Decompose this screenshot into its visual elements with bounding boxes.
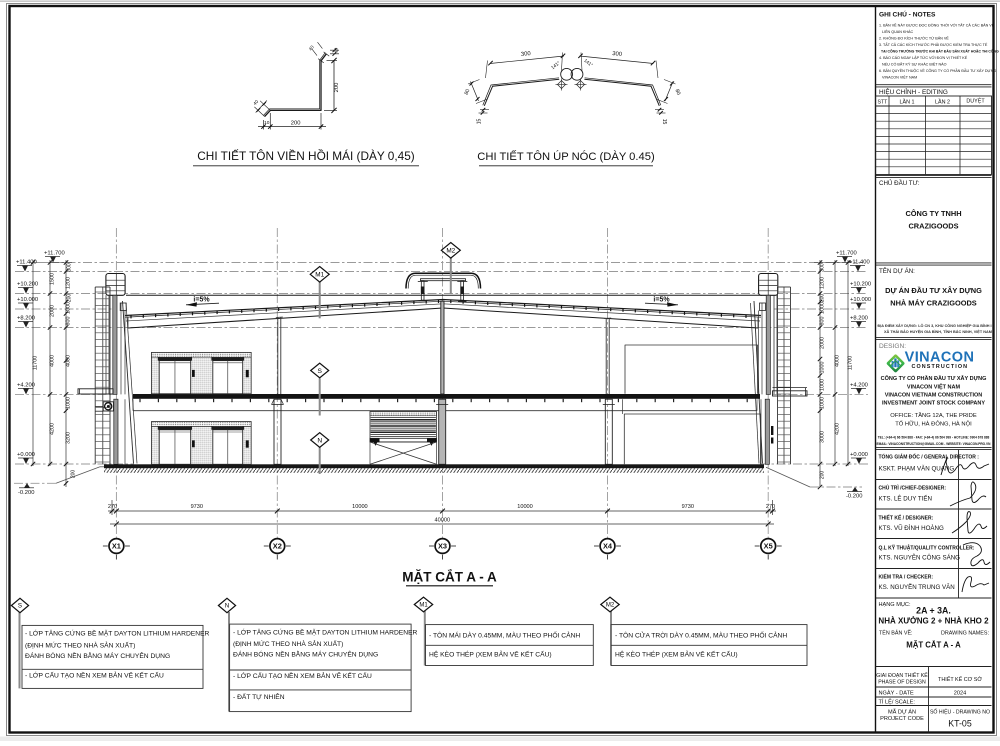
svg-text:+0.000: +0.000 xyxy=(850,452,868,458)
svg-text:1000: 1000 xyxy=(820,302,826,314)
svg-text:SỐ HIỆU - DRAWING NO: SỐ HIỆU - DRAWING NO xyxy=(930,708,990,716)
svg-text:200: 200 xyxy=(71,470,77,479)
svg-text:200: 200 xyxy=(820,471,826,480)
svg-text:X3: X3 xyxy=(438,542,447,551)
svg-text:DESIGN:: DESIGN: xyxy=(879,343,906,350)
svg-text:300: 300 xyxy=(67,263,73,272)
svg-text:1500: 1500 xyxy=(50,273,56,285)
svg-text:11700: 11700 xyxy=(33,356,39,371)
svg-text:800: 800 xyxy=(820,317,826,326)
svg-text:300: 300 xyxy=(521,51,531,58)
svg-text:3200: 3200 xyxy=(66,432,72,444)
svg-text:PHASE OF DESIGN: PHASE OF DESIGN xyxy=(878,680,926,686)
svg-text:VINACON VIETNAM CONSTRUCTION: VINACON VIETNAM CONSTRUCTION xyxy=(885,393,983,399)
svg-text:S: S xyxy=(18,603,22,610)
svg-text:1200: 1200 xyxy=(66,277,72,289)
svg-text:10: 10 xyxy=(334,47,339,53)
svg-text:MẶT CẮT A - A: MẶT CẮT A - A xyxy=(402,570,497,585)
svg-text:i=5%: i=5% xyxy=(193,296,210,303)
svg-text:M1: M1 xyxy=(315,272,324,279)
svg-text:VINACON VIỆT NAM: VINACON VIỆT NAM xyxy=(907,383,961,391)
svg-text:X5: X5 xyxy=(764,542,773,551)
svg-text:270: 270 xyxy=(766,504,775,510)
svg-text:4000: 4000 xyxy=(66,355,72,367)
svg-text:3000: 3000 xyxy=(820,431,826,443)
svg-text:15: 15 xyxy=(661,119,667,125)
svg-text:+0.000: +0.000 xyxy=(17,452,35,458)
svg-text:+8.200: +8.200 xyxy=(17,316,35,322)
svg-text:-0.200: -0.200 xyxy=(18,490,34,496)
svg-text:10000: 10000 xyxy=(517,504,533,510)
svg-text:S: S xyxy=(317,368,322,375)
svg-text:6. BẢN QUYỀN THUỘC VỀ CÔNG TY: 6. BẢN QUYỀN THUỘC VỀ CÔNG TY CỔ PHẦN ĐẦ… xyxy=(879,68,996,73)
svg-text:+10.200: +10.200 xyxy=(850,282,871,288)
svg-text:TẠI CÔNG TRƯỜNG TRƯỚC KHI BẮT: TẠI CÔNG TRƯỜNG TRƯỚC KHI BẮT ĐẦU SẢN XU… xyxy=(881,49,999,54)
svg-text:1. BẢN VẼ NÀY ĐƯỢC ĐỌC ĐỒNG TH: 1. BẢN VẼ NÀY ĐƯỢC ĐỌC ĐỒNG THỜI VỚI TẤT… xyxy=(879,23,995,28)
svg-text:200: 200 xyxy=(67,294,73,303)
svg-text:+4.200: +4.200 xyxy=(850,382,868,388)
svg-text:2. KHÔNG ĐO KÍCH THƯỚC TỪ BẢN: 2. KHÔNG ĐO KÍCH THƯỚC TỪ BẢN VẼ xyxy=(879,36,949,41)
svg-text:300: 300 xyxy=(820,263,826,272)
svg-text:CHI TIẾT TÔN ÚP NÓC (DÀY 0.45): CHI TIẾT TÔN ÚP NÓC (DÀY 0.45) xyxy=(477,150,655,163)
svg-text:CONSTRUCTION: CONSTRUCTION xyxy=(911,364,968,370)
svg-text:270: 270 xyxy=(108,504,117,510)
svg-text:STT: STT xyxy=(878,100,889,106)
svg-text:CHỦ TRÌ /CHIEF-DESIGNER:: CHỦ TRÌ /CHIEF-DESIGNER: xyxy=(879,484,947,492)
svg-text:N: N xyxy=(317,437,322,444)
svg-text:X1: X1 xyxy=(112,542,121,551)
svg-text:KTS. NGUYỄN CÔNG SÁNG: KTS. NGUYỄN CÔNG SÁNG xyxy=(879,555,961,562)
svg-text:KT-05: KT-05 xyxy=(948,719,972,729)
svg-text:CHỦ ĐẦU TƯ:: CHỦ ĐẦU TƯ: xyxy=(879,180,920,187)
svg-text:MẶT CẮT A - A: MẶT CẮT A - A xyxy=(906,641,961,650)
svg-text:THIẾT KẾ / DESIGNER:: THIẾT KẾ / DESIGNER: xyxy=(879,515,934,522)
svg-text:1000: 1000 xyxy=(66,302,72,314)
svg-text:TEL: (+84-4) 66 564 888 - FAX:: TEL: (+84-4) 66 564 888 - FAX: (+84-4) 6… xyxy=(878,436,990,440)
svg-text:KTS. LÊ DUY TIẾN: KTS. LÊ DUY TIẾN xyxy=(879,495,932,503)
svg-text:+10.000: +10.000 xyxy=(17,297,38,303)
svg-text:GHI CHÚ - NOTES: GHI CHÚ - NOTES xyxy=(879,10,936,19)
svg-text:1000: 1000 xyxy=(820,379,826,391)
svg-text:MÃ DỰ ÁN: MÃ DỰ ÁN xyxy=(888,709,916,716)
svg-text:X2: X2 xyxy=(273,542,282,551)
svg-text:M1: M1 xyxy=(419,603,428,609)
svg-text:4. BÁO CÁO NGAY LẬP TỨC VỚI ĐƠ: 4. BÁO CÁO NGAY LẬP TỨC VỚI ĐƠN VỊ THIẾT… xyxy=(879,55,968,60)
svg-text:4000: 4000 xyxy=(50,355,56,367)
svg-text:M2: M2 xyxy=(446,248,455,255)
svg-text:10000: 10000 xyxy=(352,504,368,510)
svg-text:TÊN DỰ ÁN:: TÊN DỰ ÁN: xyxy=(879,267,915,275)
svg-text:LIÊN QUAN KHÁC: LIÊN QUAN KHÁC xyxy=(882,29,913,34)
svg-text:-0.200: -0.200 xyxy=(846,494,862,500)
svg-text:TỐ HỮU, HÀ ĐÔNG, HÀ NỘI: TỐ HỮU, HÀ ĐÔNG, HÀ NỘI xyxy=(895,421,972,428)
svg-text:NHÀ MÁY CRAZIGOODS: NHÀ MÁY CRAZIGOODS xyxy=(890,299,977,308)
svg-text:TỈ LỆ/ SCALE:: TỈ LỆ/ SCALE: xyxy=(879,697,916,705)
svg-text:DRAWING NAMES:: DRAWING NAMES: xyxy=(941,631,989,637)
svg-text:15: 15 xyxy=(477,119,483,125)
svg-text:+11.700: +11.700 xyxy=(836,251,857,257)
svg-text:CHI TIẾT TÔN VIỀN HỒI MÁI (DÀY: CHI TIẾT TÔN VIỀN HỒI MÁI (DÀY 0,45) xyxy=(197,149,414,163)
svg-text:CRAZIGOODS: CRAZIGOODS xyxy=(908,222,958,231)
svg-text:LẦN 1: LẦN 1 xyxy=(900,99,915,106)
svg-text:N: N xyxy=(225,603,229,610)
svg-text:200: 200 xyxy=(820,294,826,303)
svg-text:KIỂM TRA / CHECKER:: KIỂM TRA / CHECKER: xyxy=(879,574,934,581)
svg-text:4200: 4200 xyxy=(50,423,56,435)
svg-text:KS. NGUYỄN TRUNG VĂN: KS. NGUYỄN TRUNG VĂN xyxy=(879,584,955,591)
svg-text:2000: 2000 xyxy=(820,337,826,349)
svg-text:CÔNG TY CỔ PHẦN ĐẦU TƯ XÂY DỰN: CÔNG TY CỔ PHẦN ĐẦU TƯ XÂY DỰNG xyxy=(881,374,987,382)
svg-text:CÔNG TY TNHH: CÔNG TY TNHH xyxy=(905,209,961,218)
svg-text:HIỆU CHỈNH - EDITING: HIỆU CHỈNH - EDITING xyxy=(879,87,948,96)
svg-text:LẦN 2: LẦN 2 xyxy=(935,99,950,106)
svg-text:+11.400: +11.400 xyxy=(849,260,870,266)
svg-text:EMAIL: VINACONSTRUCTION@GMAIL.: EMAIL: VINACONSTRUCTION@GMAIL.COM - WEBS… xyxy=(877,442,992,446)
svg-text:NẾU CÓ BẤT KỲ SỰ KHÁC BIỆT NÀO: NẾU CÓ BẤT KỲ SỰ KHÁC BIỆT NÀO xyxy=(882,62,947,67)
svg-text:DUYỆT: DUYỆT xyxy=(966,97,985,105)
svg-text:9730: 9730 xyxy=(191,504,203,510)
svg-text:PROJECT CODE: PROJECT CODE xyxy=(880,716,924,722)
svg-text:GIAI ĐOẠN THIẾT KẾ: GIAI ĐOẠN THIẾT KẾ xyxy=(876,672,928,679)
svg-text:OFFICE: TẦNG 12A, THE PRIDE: OFFICE: TẦNG 12A, THE PRIDE xyxy=(890,412,977,419)
svg-text:VINACON VIỆT NAM: VINACON VIỆT NAM xyxy=(882,75,917,80)
svg-text:1000: 1000 xyxy=(820,397,826,409)
svg-text:KTS. VŨ ĐÌNH HOÀNG: KTS. VŨ ĐÌNH HOÀNG xyxy=(879,525,945,532)
svg-text:2000: 2000 xyxy=(50,305,56,317)
svg-text:X4: X4 xyxy=(603,542,613,551)
svg-text:+8.200: +8.200 xyxy=(850,316,868,322)
svg-text:200: 200 xyxy=(291,120,301,126)
svg-text:i=5%: i=5% xyxy=(653,296,670,303)
svg-text:10: 10 xyxy=(264,120,270,126)
svg-text:NHÀ XƯỞNG 2 + NHÀ KHO 2: NHÀ XƯỞNG 2 + NHÀ KHO 2 xyxy=(878,617,989,626)
svg-text:40000: 40000 xyxy=(435,518,451,524)
svg-text:11700: 11700 xyxy=(848,356,854,371)
svg-text:ĐỊA ĐIỂM XÂY DỰNG: LÔ CN 3, KH: ĐỊA ĐIỂM XÂY DỰNG: LÔ CN 3, KHU CÔNG NGH… xyxy=(878,323,992,328)
svg-text:+4.200: +4.200 xyxy=(17,382,35,388)
svg-text:4200: 4200 xyxy=(835,423,841,435)
svg-text:TỔNG GIÁM ĐỐC / GENERAL DIRECT: TỔNG GIÁM ĐỐC / GENERAL DIRECTOR : xyxy=(879,454,980,461)
svg-text:HẠNG MỤC:: HẠNG MỤC: xyxy=(879,602,911,608)
svg-text:M2: M2 xyxy=(606,603,615,609)
svg-text:+10.000: +10.000 xyxy=(850,297,871,303)
svg-text:+11.700: +11.700 xyxy=(44,251,65,257)
svg-text:3. TẤT CẢ CÁC KÍCH THƯỚC PHẢI: 3. TẤT CẢ CÁC KÍCH THƯỚC PHẢI ĐƯỢC KIỂM … xyxy=(879,42,988,47)
svg-text:XÃ THÁI BẢO HUYỆN GIA BÌNH, TỈ: XÃ THÁI BẢO HUYỆN GIA BÌNH, TỈNH BẮC NIN… xyxy=(884,329,992,334)
svg-text:9730: 9730 xyxy=(682,504,694,510)
svg-text:+11.400: +11.400 xyxy=(16,260,37,266)
svg-text:300: 300 xyxy=(612,51,622,58)
svg-text:2A + 3A.: 2A + 3A. xyxy=(916,606,951,616)
svg-text:800: 800 xyxy=(66,317,72,326)
svg-text:Q.L KỸ THUẬT/QUALITY CONTROLLE: Q.L KỸ THUẬT/QUALITY CONTROLLER: xyxy=(879,545,975,552)
svg-text:200: 200 xyxy=(334,83,340,93)
svg-text:1000: 1000 xyxy=(66,397,72,409)
svg-text:1200: 1200 xyxy=(820,277,826,289)
svg-text:TÊN BẢN VẼ:: TÊN BẢN VẼ: xyxy=(879,629,913,637)
svg-text:+10.200: +10.200 xyxy=(17,282,38,288)
svg-text:1000: 1000 xyxy=(820,362,826,374)
svg-text:2024: 2024 xyxy=(954,691,966,697)
svg-text:NGÀY - DATE: NGÀY - DATE xyxy=(879,690,914,697)
svg-text:THIẾT KẾ CƠ SỞ: THIẾT KẾ CƠ SỞ xyxy=(938,676,982,683)
svg-text:DỰ ÁN ĐẦU TƯ XÂY DỰNG: DỰ ÁN ĐẦU TƯ XÂY DỰNG xyxy=(885,285,982,295)
svg-text:INVESTMENT JOINT STOCK COMPANY: INVESTMENT JOINT STOCK COMPANY xyxy=(882,401,985,407)
svg-text:4000: 4000 xyxy=(835,355,841,367)
